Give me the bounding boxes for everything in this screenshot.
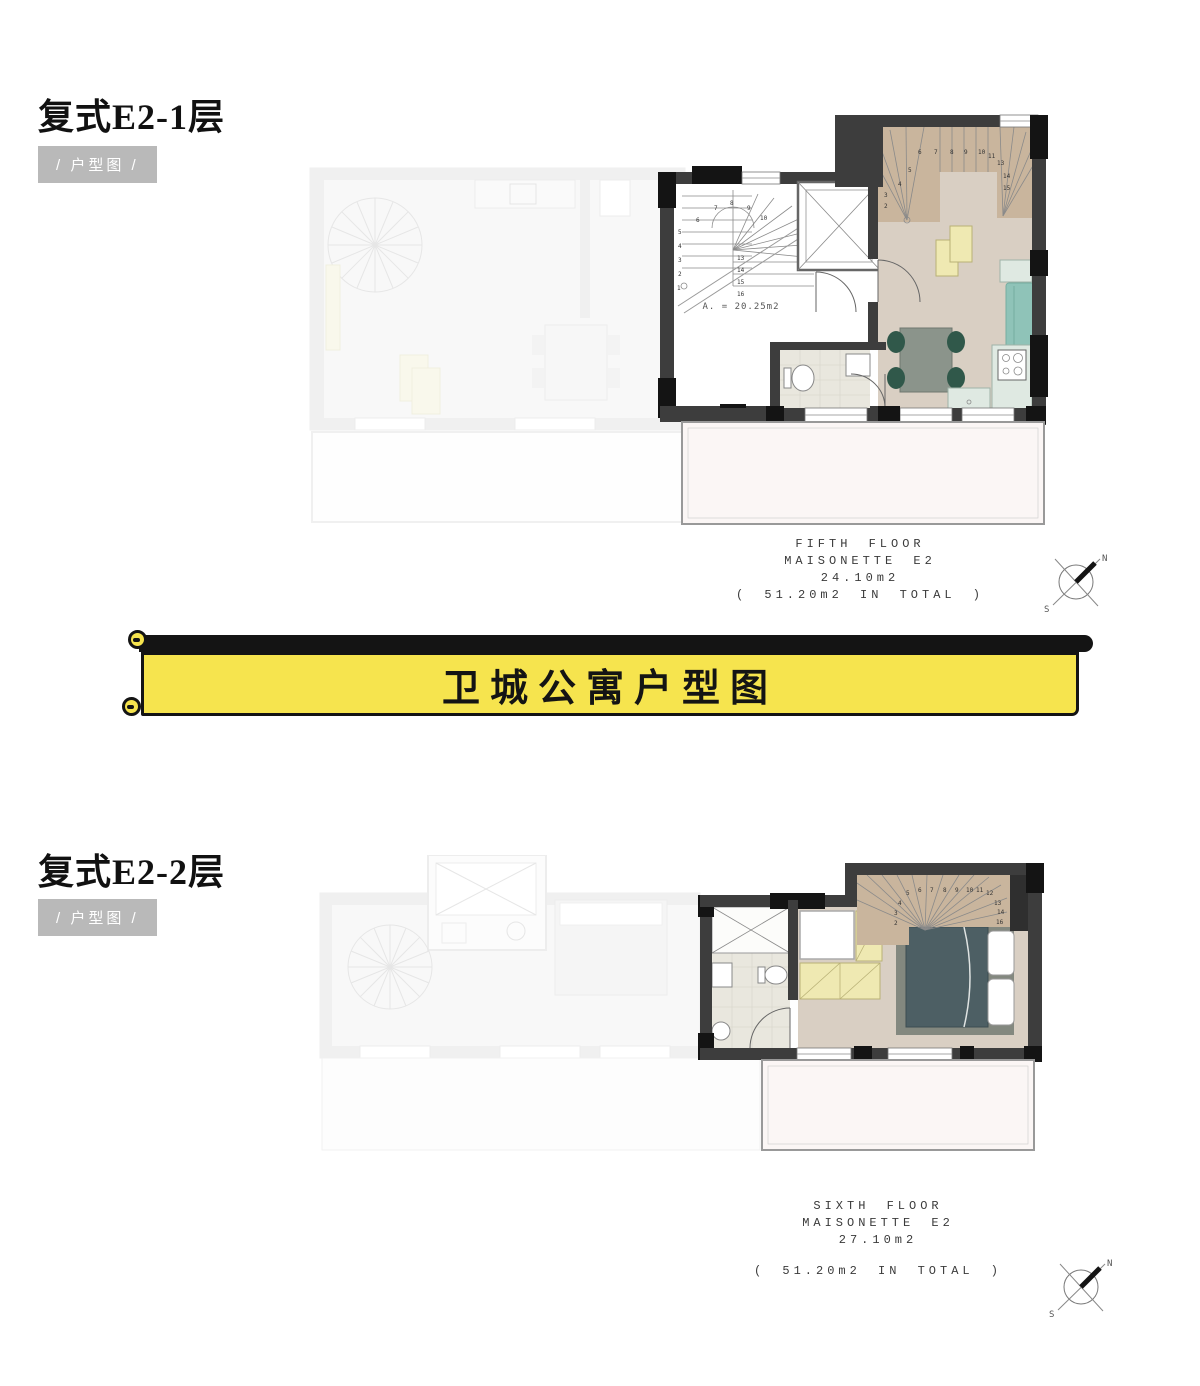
- toilet: [784, 368, 791, 388]
- banner-title: 卫城公寓户型图: [442, 657, 778, 712]
- toilet: [765, 966, 787, 984]
- stair-num: 3: [678, 257, 682, 264]
- bathroom-sink: [712, 963, 732, 987]
- stair-num: 1: [677, 285, 681, 292]
- stair-num: 13: [737, 255, 745, 262]
- stair-num: 14: [737, 267, 745, 274]
- sofa: [1006, 283, 1034, 355]
- spiral-stair-icon: [328, 198, 422, 292]
- section1-title: 复式E2-1层: [38, 88, 225, 140]
- bed: [906, 927, 988, 1027]
- annotation-line: ( 51.20m2 IN TOTAL ): [738, 1263, 1018, 1280]
- stair-num: 7: [934, 149, 938, 156]
- floor-plan-fifth: 1 2 3 4 5 6 7 8 9 10 13 14 15 16 A. = 20…: [300, 110, 1050, 530]
- stair-num: 6: [918, 887, 922, 894]
- banner-scroll-bar: [139, 635, 1093, 652]
- stair-num: 12: [986, 890, 994, 897]
- stair-num: 7: [930, 887, 934, 894]
- stair-num: 14: [997, 909, 1005, 916]
- stair-num: 10: [760, 215, 768, 222]
- terrace: [682, 422, 1044, 524]
- annotation-line: MAISONETTE E2: [738, 1215, 1018, 1232]
- stair-num: 7: [714, 205, 718, 212]
- washer: [712, 1022, 730, 1040]
- banner: 卫城公寓户型图: [125, 628, 1097, 720]
- stair-num: 9: [955, 887, 959, 894]
- stair-num: 9: [747, 205, 751, 212]
- stair-num: 2: [678, 271, 682, 278]
- stair-num: 14: [1003, 173, 1011, 180]
- spiral-stair-icon: [348, 925, 432, 1009]
- stove: [998, 350, 1026, 380]
- banner-body: 卫城公寓户型图: [141, 652, 1079, 716]
- stair-num: 8: [950, 149, 954, 156]
- stair-num: 8: [730, 200, 734, 207]
- pillow: [988, 979, 1014, 1025]
- compass-north-label: N: [1102, 554, 1107, 564]
- stair-num: 4: [678, 243, 682, 250]
- stair-num: 10: [966, 887, 974, 894]
- scroll-curl-icon: [128, 630, 147, 649]
- plan2-annotation: SIXTH FLOOR MAISONETTE E2 27.10m2 ( 51.2…: [738, 1198, 1018, 1280]
- section2-title: 复式E2-2层: [38, 843, 225, 895]
- stair-num: 5: [906, 890, 910, 897]
- stair-num: 6: [696, 217, 700, 224]
- stair-num: 10: [978, 149, 986, 156]
- compass-icon: N S: [1045, 1253, 1125, 1323]
- stair-num: 5: [908, 167, 912, 174]
- stair-num: 3: [884, 192, 888, 199]
- compass-north-label: N: [1107, 1259, 1112, 1269]
- plan1-annotation: FIFTH FLOOR MAISONETTE E2 24.10m2 ( 51.2…: [720, 536, 1000, 604]
- terrace: [762, 1060, 1034, 1150]
- annotation-line: FIFTH FLOOR: [720, 536, 1000, 553]
- annotation-line: ( 51.20m2 IN TOTAL ): [720, 587, 1000, 604]
- stair-num: 4: [898, 900, 902, 907]
- compass-icon: N S: [1040, 548, 1120, 618]
- unit-sixth: 2 3 4 5 6 7 8 9 10 11 12 13 14 16: [698, 863, 1044, 1062]
- stair-num: 9: [964, 149, 968, 156]
- annotation-line: 24.10m2: [720, 570, 1000, 587]
- annotation-line: MAISONETTE E2: [720, 553, 1000, 570]
- stair-num: 16: [996, 919, 1004, 926]
- flyer-page: 复式E2-1层 / 户型图 /: [0, 0, 1200, 1386]
- stair-num: 16: [737, 291, 745, 298]
- stair-num: 8: [943, 887, 947, 894]
- stair-num: 4: [898, 181, 902, 188]
- stair-num: 3: [894, 910, 898, 917]
- common-area-label: A. = 20.25m2: [702, 302, 779, 312]
- section2-badge: / 户型图 /: [38, 899, 157, 936]
- annotation-line: SIXTH FLOOR: [738, 1198, 1018, 1215]
- bathroom: [770, 342, 886, 418]
- compass-south-label: S: [1044, 605, 1049, 615]
- stair-num: 15: [737, 279, 745, 286]
- ghost-unit: [310, 168, 685, 522]
- stair-num: 13: [997, 160, 1005, 167]
- ghost-unit: [320, 855, 760, 1150]
- stair-num: 2: [884, 203, 888, 210]
- compass-south-label: S: [1049, 1310, 1054, 1320]
- stair-num: 11: [976, 887, 984, 894]
- stair-num: 6: [918, 149, 922, 156]
- pillow: [988, 931, 1014, 975]
- bathroom-sink: [846, 354, 870, 376]
- stair-num: 2: [894, 920, 898, 927]
- floor-plan-sixth: 2 3 4 5 6 7 8 9 10 11 12 13 14 16: [300, 855, 1050, 1155]
- section1-badge: / 户型图 /: [38, 146, 157, 183]
- scroll-curl-icon: [122, 697, 141, 716]
- stair-num: 13: [994, 900, 1002, 907]
- annotation-line: 27.10m2: [738, 1232, 1018, 1249]
- stair-num: 5: [678, 229, 682, 236]
- coffee-table: [950, 226, 972, 262]
- stair-num: 15: [1003, 185, 1011, 192]
- stair-num: 11: [988, 153, 996, 160]
